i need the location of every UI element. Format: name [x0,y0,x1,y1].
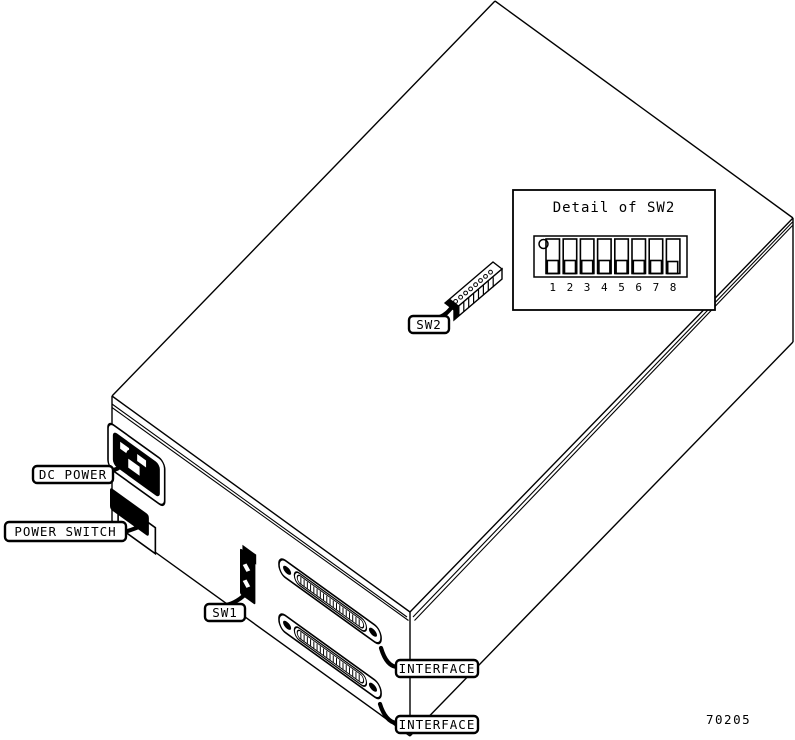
dip-position-number: 1 [549,281,556,294]
label-dc-power: DC POWER [33,466,113,483]
label-interface-bottom: INTERFACE [396,716,478,733]
label-interface-top-text: INTERFACE [399,661,476,676]
dip-position-number: 2 [567,281,574,294]
label-sw1-text: SW1 [212,605,238,620]
technical-diagram-page: Detail of SW2 1 2 3 4 [0,0,795,740]
label-power-switch-text: POWER SWITCH [14,524,116,539]
device-rear-isometric-diagram: Detail of SW2 1 2 3 4 [0,0,795,740]
label-sw2-text: SW2 [416,317,442,332]
dip-position-number: 7 [653,281,660,294]
dip-position-number: 5 [618,281,625,294]
detail-title: Detail of SW2 [553,200,676,216]
top-left-edge [112,1,495,396]
label-power-switch: POWER SWITCH [5,522,126,541]
top-face-front-left-edge [112,396,410,612]
label-dc-power-text: DC POWER [39,467,107,482]
label-interface-bottom-text: INTERFACE [399,717,476,732]
dip-position-number: 8 [670,281,677,294]
chassis-outline [112,1,793,736]
sw2-dip-switch [445,262,502,320]
callout-labels: DC POWER POWER SWITCH SW1 SW2 INTERFACE … [5,316,478,733]
label-sw1: SW1 [205,604,245,621]
label-sw2: SW2 [409,316,449,333]
dip-position-number: 3 [584,281,591,294]
dip-position-number: 4 [601,281,608,294]
label-interface-top: INTERFACE [396,660,478,677]
detail-inset: Detail of SW2 1 2 3 4 [513,190,715,310]
dip-position-number: 6 [635,281,642,294]
top-right-edge [495,1,793,218]
figure-number: 70205 [706,712,751,727]
